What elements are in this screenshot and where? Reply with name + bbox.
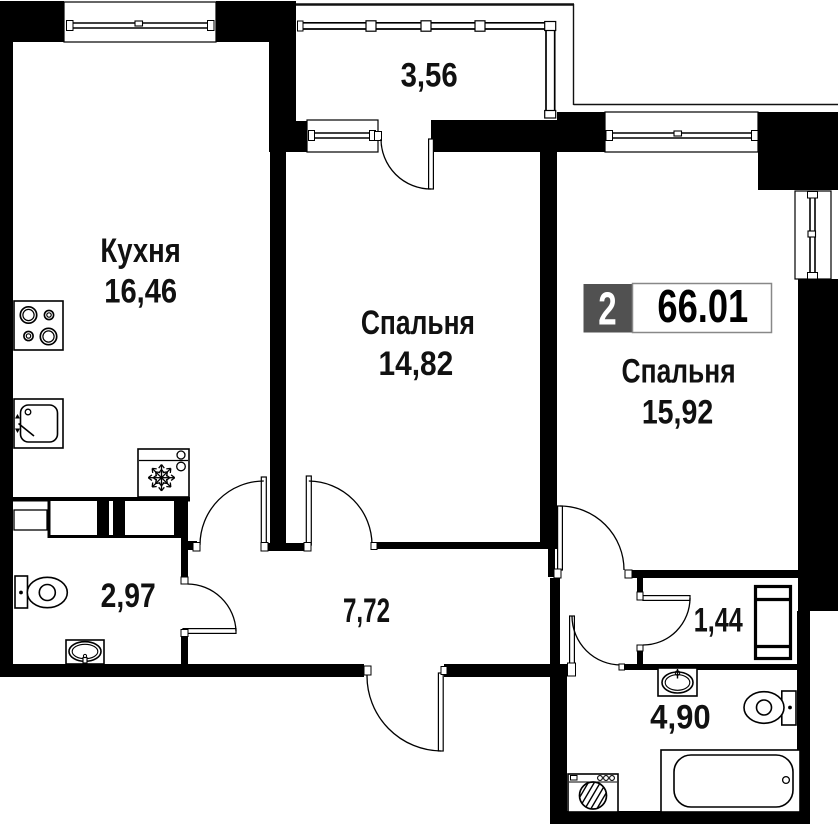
- svg-text:3,56: 3,56: [401, 55, 458, 94]
- svg-text:1,44: 1,44: [694, 602, 743, 640]
- svg-text:66.01: 66.01: [657, 280, 748, 332]
- svg-text:2: 2: [598, 284, 616, 334]
- svg-text:15,92: 15,92: [642, 392, 713, 431]
- svg-text:16,46: 16,46: [104, 271, 177, 310]
- svg-text:Спальня: Спальня: [361, 302, 475, 341]
- svg-text:2,97: 2,97: [101, 575, 156, 614]
- svg-text:4,90: 4,90: [650, 697, 710, 736]
- svg-text:14,82: 14,82: [378, 344, 453, 382]
- svg-text:Кухня: Кухня: [100, 231, 180, 270]
- svg-text:Спальня: Спальня: [622, 351, 736, 390]
- svg-text:7,72: 7,72: [343, 592, 390, 630]
